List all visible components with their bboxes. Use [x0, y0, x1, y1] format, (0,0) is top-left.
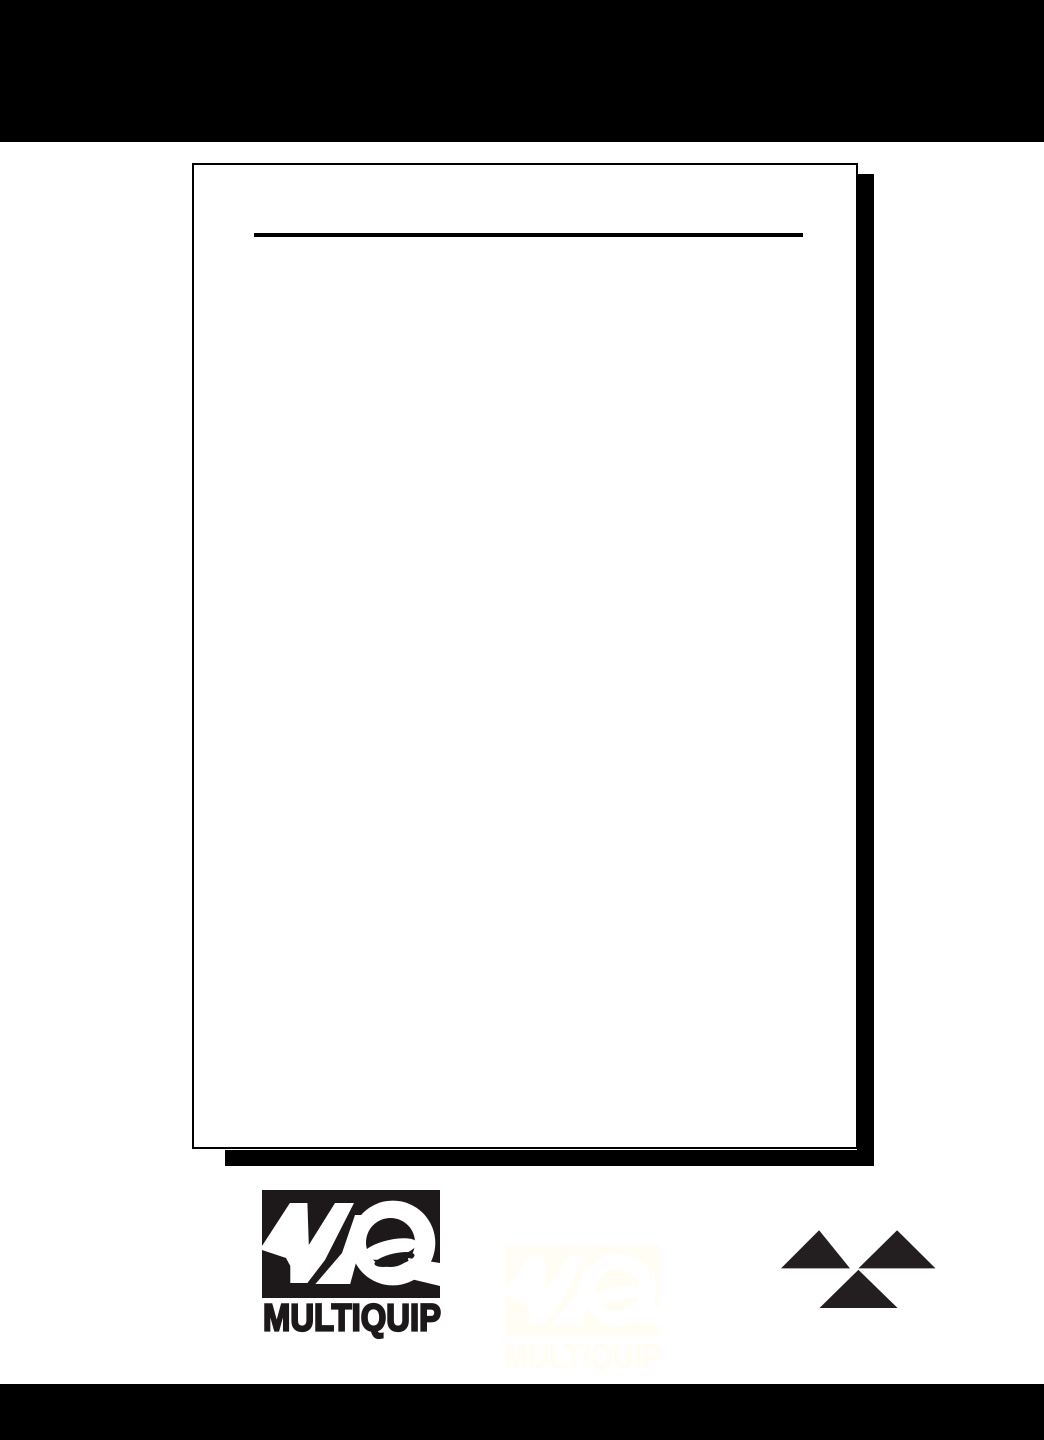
svg-text:MULTIQUIP: MULTIQUIP [504, 1338, 662, 1375]
svg-text:MULTIQUIP: MULTIQUIP [263, 1298, 441, 1340]
